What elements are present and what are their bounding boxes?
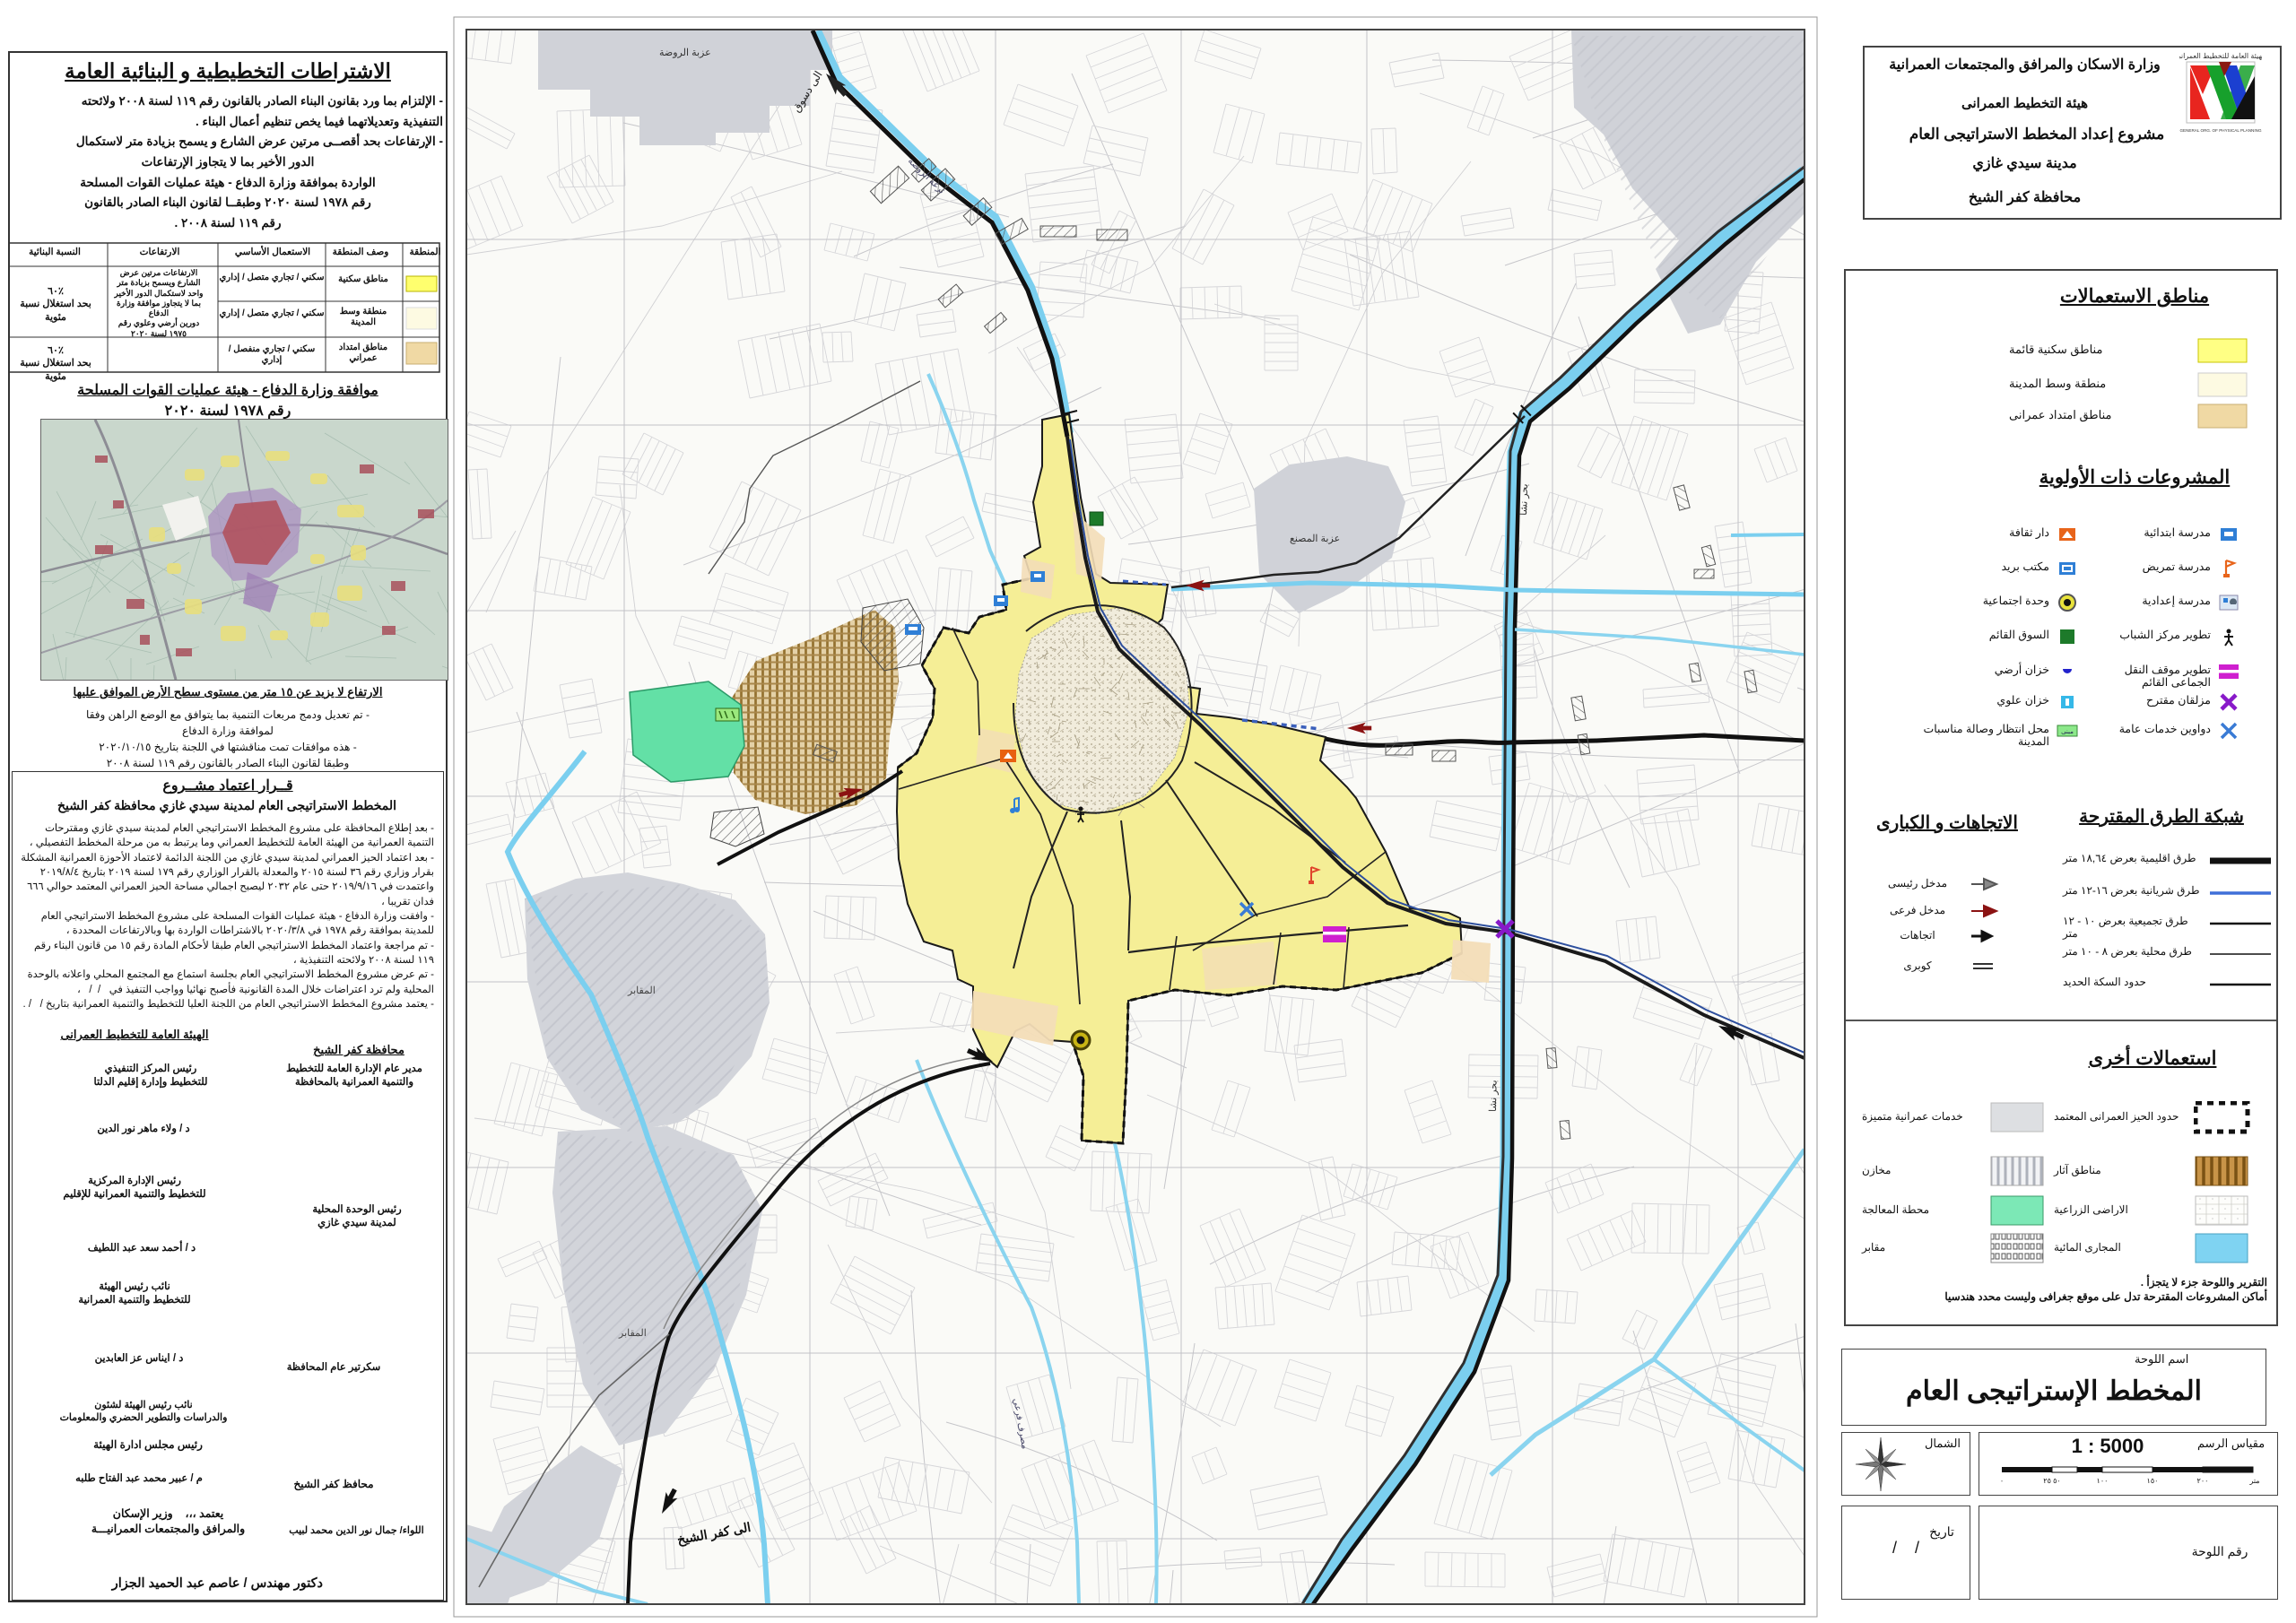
svg-text:٢٠٠: ٢٠٠ <box>2197 1477 2209 1485</box>
svg-text:٠: ٠ <box>2000 1477 2004 1485</box>
svg-text:الهيئة العامة للتخطيط العمرانى: الهيئة العامة للتخطيط العمرانى <box>2179 52 2262 60</box>
svg-text:المقابر: المقابر <box>627 985 656 996</box>
svg-text:عزبة المصنع: عزبة المصنع <box>1290 534 1340 544</box>
svg-text:٥٠ ٢٥: ٥٠ ٢٥ <box>2043 1477 2060 1485</box>
svg-text:مبنى: مبنى <box>2061 729 2074 735</box>
svg-text:عزبة الروضة: عزبة الروضة <box>659 48 711 58</box>
svg-text:بحر نشا: بحر نشا <box>1518 483 1530 516</box>
svg-text:١٠٠: ١٠٠ <box>2097 1477 2109 1485</box>
svg-text:متر: متر <box>2248 1477 2259 1485</box>
svg-text:بحر نشا: بحر نشا <box>1488 1080 1500 1112</box>
svg-text:١٥٠: ١٥٠ <box>2147 1477 2159 1485</box>
svg-text:المقابر: المقابر <box>618 1328 647 1339</box>
